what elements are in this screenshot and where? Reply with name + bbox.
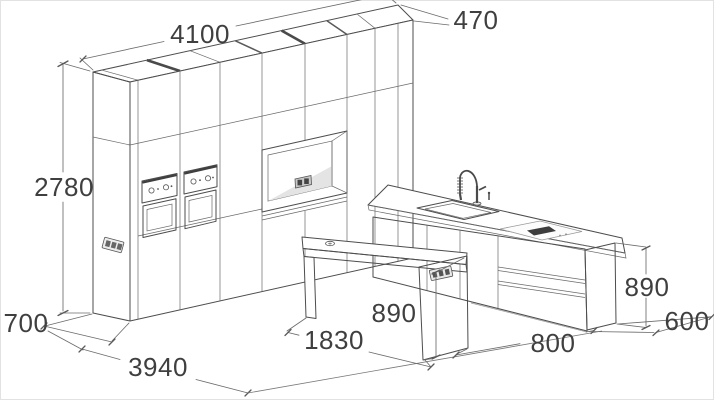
dim-label-cabinet-depth-top: 470 [454,5,499,35]
dim-label-table-height: 890 [372,298,417,328]
dim-label-cabinet-run-length: 4100 [170,19,230,49]
dim-label-floor-depth-total: 3940 [128,352,188,382]
dim-label-cabinet-height: 2780 [34,172,94,202]
dim-label-cabinet-base-depth: 700 [4,308,49,338]
dim-label-island-height: 890 [625,272,670,302]
dim-label-island-end-width: 600 [665,306,710,336]
dim-label-aisle-width: 800 [531,328,576,358]
kitchen-dimension-drawing: 4100 470 2780 700 3940 1830 890 800 890 … [0,0,714,400]
cable-grommet [326,241,335,245]
table-left-leg [304,257,316,319]
dim-label-table-length: 1830 [304,325,364,355]
drawing-canvas: 4100 470 2780 700 3940 1830 890 800 890 … [0,0,714,400]
